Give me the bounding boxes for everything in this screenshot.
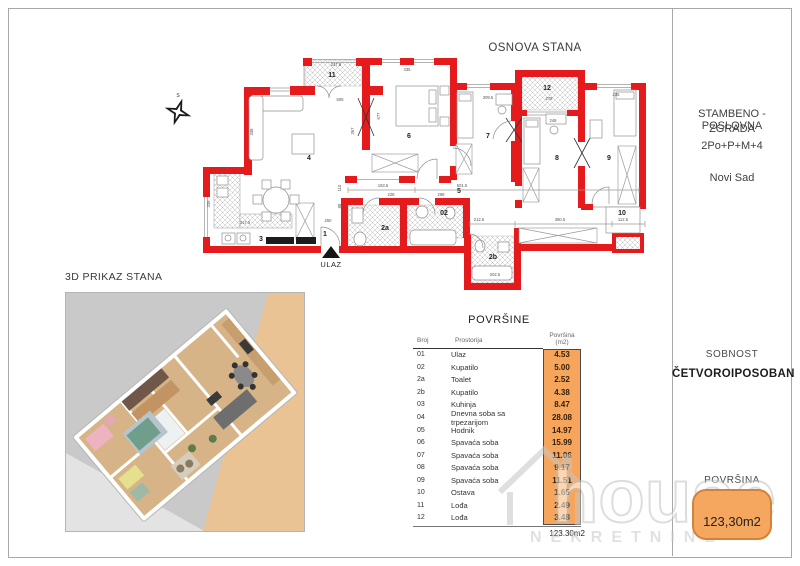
floorplan-drawing: ULAZ 111246789512a022b310 505247.6335309…	[195, 50, 665, 295]
table-row: 06Spavaća soba15.99	[413, 436, 581, 449]
table-row: 11Lođa2.49	[413, 499, 581, 512]
dimension-label: 88	[337, 203, 342, 208]
dimension-label: 317.5	[240, 220, 251, 225]
total-area-badge: 123,30m2	[692, 489, 772, 540]
table-row: 01Ulaz4.53	[413, 349, 581, 362]
entrance-label: ULAZ	[320, 260, 341, 269]
dimension-label: 235	[613, 92, 621, 97]
view3d-title: 3D PRIKAZ STANA	[65, 271, 162, 283]
apartment-datasheet: OSNOVA STANA 3D PRIKAZ STANA S	[0, 0, 800, 566]
room-label: 3	[259, 236, 263, 243]
dimension-label: 380.5	[555, 217, 566, 222]
dimension-label: 170.6	[216, 166, 227, 171]
room-label: 2b	[489, 254, 497, 261]
dimension-label: 110	[337, 184, 342, 191]
col-header-povrsina: Površina (m2)	[543, 332, 581, 346]
table-row: 09Spavaća soba11.51	[413, 474, 581, 487]
loggia-12-floor	[522, 77, 578, 110]
dimension-label: 250	[325, 218, 333, 223]
room-label: 9	[607, 155, 611, 162]
dimension-label: 248	[550, 118, 558, 123]
table-row: 08Spavaća soba9.17	[413, 461, 581, 474]
rooms-value: ČETVOROIPOSOBAN	[672, 368, 792, 380]
table-row: 2aToalet2.52	[413, 374, 581, 387]
dimension-label: 335	[404, 67, 412, 72]
col-header-broj: Broj	[417, 337, 429, 344]
table-row: 04Dnevna soba sa trpezarijom28.08	[413, 411, 581, 424]
city: Novi Sad	[672, 172, 792, 184]
building-type-line2: ZGRADA	[672, 123, 792, 135]
dimension-label: 309.5	[483, 95, 494, 100]
sidebar-divider	[672, 9, 673, 556]
table-row: 07Spavaća soba11.06	[413, 449, 581, 462]
dimension-label: 112.5	[618, 217, 629, 222]
room-label: 12	[543, 85, 551, 92]
table-row: 12Lođa3.48	[413, 512, 581, 525]
dimension-label: 339	[206, 200, 211, 208]
dimension-label: 228	[388, 192, 396, 197]
area-label: POVRŠINA	[672, 475, 792, 486]
room-label: 7	[486, 133, 490, 140]
rooms-label: SOBNOST	[672, 349, 792, 360]
areas-table: POVRŠINE Broj Prostorija Površina (m2) 0…	[413, 314, 585, 544]
areas-table-header: Broj Prostorija Površina (m2)	[413, 332, 581, 348]
total-area: 123.30m2	[549, 529, 585, 538]
room-label: 02	[440, 210, 448, 217]
dimension-label: 677	[376, 112, 381, 120]
areas-table-title: POVRŠINE	[413, 314, 585, 326]
dimension-label: 501.5	[457, 183, 468, 188]
dimension-label: 338	[249, 128, 254, 136]
compass-label: S	[176, 93, 180, 99]
dimension-label: 505	[337, 97, 345, 102]
entrance-arrow	[322, 246, 340, 258]
building-floors: 2Po+P+M+4	[672, 140, 792, 152]
room-label: 4	[307, 155, 311, 162]
room-label: 1	[323, 231, 327, 238]
table-row: 02Kupatilo5.00	[413, 361, 581, 374]
table-row: 05Hodnik14.97	[413, 424, 581, 437]
areas-table-rows: 01Ulaz4.5302Kupatilo5.002aToalet2.522bKu…	[413, 349, 581, 525]
room-label: 11	[328, 72, 336, 79]
total-area-value: 123,30m2	[703, 514, 761, 538]
compass-icon: S	[162, 90, 194, 128]
room-label: 8	[555, 155, 559, 162]
dimension-label: 247.6	[331, 62, 342, 67]
dimension-label: 202.5	[490, 272, 501, 277]
table-row: 10Ostava1.65	[413, 487, 581, 500]
dimension-label: 367	[350, 127, 355, 135]
dimension-label: 163.5	[378, 183, 389, 188]
total-rule	[413, 526, 581, 527]
dimension-label: 278	[546, 96, 554, 101]
room-label: 2a	[381, 225, 389, 232]
dimension-label: 212.5	[474, 217, 485, 222]
col-header-prostorija: Prostorija	[455, 337, 482, 344]
view3d-render	[65, 292, 305, 532]
dimension-label: 298	[438, 192, 446, 197]
room-label: 6	[407, 133, 411, 140]
shaft	[616, 237, 640, 249]
room-label: 10	[618, 210, 626, 217]
room-label: 5	[457, 188, 461, 195]
table-row: 2bKupatilo4.38	[413, 386, 581, 399]
